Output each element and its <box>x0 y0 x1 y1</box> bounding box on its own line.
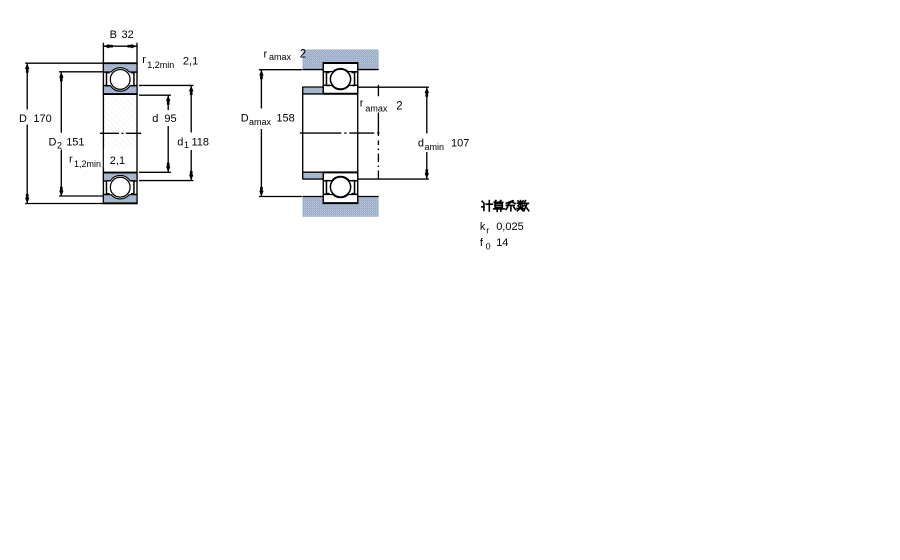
svg-text:2: 2 <box>300 48 306 60</box>
svg-text:d: d <box>418 137 424 149</box>
svg-text:B: B <box>110 29 117 41</box>
svg-text:32: 32 <box>122 29 134 41</box>
svg-text:d: d <box>152 113 158 125</box>
svg-text:D: D <box>241 112 249 124</box>
svg-text:107: 107 <box>451 137 469 149</box>
svg-text:amax: amax <box>249 117 272 127</box>
svg-text:1: 1 <box>184 140 189 150</box>
svg-text:r: r <box>486 226 489 236</box>
svg-text:r: r <box>69 154 73 166</box>
svg-text:amax: amax <box>269 52 292 62</box>
svg-text:k: k <box>480 221 486 233</box>
svg-text:d: d <box>177 137 183 149</box>
svg-text:118: 118 <box>192 137 210 149</box>
svg-text:151: 151 <box>66 137 84 149</box>
svg-text:0,025: 0,025 <box>496 221 524 233</box>
svg-text:2: 2 <box>396 100 402 112</box>
svg-text:2: 2 <box>57 140 62 150</box>
svg-text:2,1: 2,1 <box>183 55 198 67</box>
svg-text:158: 158 <box>276 112 294 124</box>
svg-text:170: 170 <box>33 113 51 125</box>
svg-text:2,1: 2,1 <box>110 155 125 167</box>
svg-text:0: 0 <box>486 241 491 251</box>
svg-text:r: r <box>360 98 364 110</box>
svg-text:D: D <box>19 113 27 125</box>
svg-text:f: f <box>480 237 484 249</box>
svg-text:amin: amin <box>425 142 445 152</box>
svg-text:amax: amax <box>365 104 388 114</box>
svg-text:r: r <box>264 48 268 60</box>
svg-text:1,2min: 1,2min <box>74 159 101 169</box>
svg-text:14: 14 <box>496 237 508 249</box>
svg-text:95: 95 <box>164 113 176 125</box>
svg-text:r: r <box>142 54 146 66</box>
svg-text:1,2min: 1,2min <box>147 60 174 70</box>
svg-text:D: D <box>49 137 57 149</box>
